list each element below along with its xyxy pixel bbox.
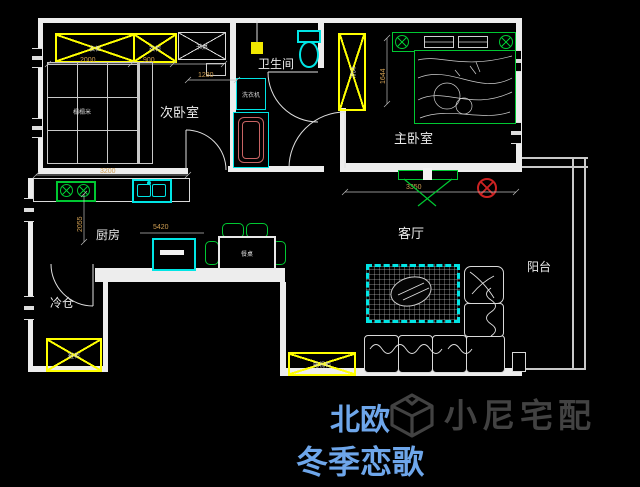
window-icon xyxy=(32,48,42,68)
dining-table: 餐桌 xyxy=(218,236,276,270)
window-icon xyxy=(24,296,34,320)
sink-faucet-icon xyxy=(147,181,151,185)
dim-kitchen-run: 3200 xyxy=(100,168,116,175)
room-label-living-room: 客厅 xyxy=(398,227,424,240)
tv-cabinet: 电视柜 xyxy=(288,352,356,376)
room-label-kitchen: 厨房 xyxy=(96,229,120,241)
room-label-cold-storage: 冷仓 xyxy=(50,297,74,309)
watermark-text: 小尼宅配 xyxy=(444,399,596,432)
balcony-window-top-1 xyxy=(522,157,588,159)
wall-left-upper xyxy=(38,18,43,174)
sofa-seat xyxy=(432,335,467,373)
room-label-balcony: 阳台 xyxy=(527,261,551,273)
balcony-window-right-2 xyxy=(584,157,586,370)
bathtub xyxy=(238,117,264,163)
dim-desk: 1280 xyxy=(198,72,214,79)
balcony-bottom-line xyxy=(522,368,584,370)
room-label-secondary-bedroom: 次卧室 xyxy=(160,106,199,119)
window-icon xyxy=(511,122,521,144)
wall-coldroom-right xyxy=(103,282,108,372)
shoe-cabinet: 鞋柜 xyxy=(46,338,102,372)
washing-machine: 洗衣机 xyxy=(236,78,266,110)
balcony-window-top-2 xyxy=(522,166,588,168)
dim-wardrobe-a: 2000 xyxy=(80,57,96,64)
balcony-step xyxy=(512,352,526,372)
floor-plan-canvas: 衣柜 衣柜 书桌 榻榻米 次卧室 2000 900 1280 洗衣机 卫生间 衣… xyxy=(0,0,640,487)
sofa-seat xyxy=(398,335,433,373)
master-wardrobe-box: 衣柜 xyxy=(338,33,366,111)
dim-kitchen-depth: 2055 xyxy=(77,216,84,232)
desk-label: 书桌 xyxy=(196,42,208,51)
water-heater xyxy=(251,42,263,54)
design-title-line2: 冬季恋歌 xyxy=(278,446,442,478)
pillow xyxy=(424,36,454,48)
balcony-window-right-1 xyxy=(572,157,574,370)
sofa-seat xyxy=(364,335,399,373)
bed xyxy=(414,50,516,124)
design-title-line1: 北欧 xyxy=(300,406,420,436)
nightstand-lamp-icon xyxy=(395,35,409,49)
pillow xyxy=(458,36,488,48)
wardrobe-box-b: 衣柜 xyxy=(133,33,177,63)
desk-box: 书桌 xyxy=(178,32,226,60)
sofa-seat xyxy=(466,335,505,373)
wall-living-left xyxy=(280,282,286,372)
dim-master-depth: 1644 xyxy=(380,68,387,84)
sofa-chaise-seat xyxy=(464,303,504,337)
dining-chair xyxy=(205,241,219,265)
dining-table-label: 餐桌 xyxy=(241,249,253,258)
wardrobe-b-label: 衣柜 xyxy=(149,44,161,53)
wardrobe-a-label: 衣柜 xyxy=(89,44,101,53)
sink-basin xyxy=(137,184,151,197)
stove-burner-icon xyxy=(60,184,73,197)
tatami-side-column xyxy=(139,62,153,164)
dim-dining-run: 5420 xyxy=(153,224,169,231)
shoe-cabinet-label: 鞋柜 xyxy=(68,351,80,360)
sofa-chaise-pillow xyxy=(464,266,504,304)
tatami-label: 榻榻米 xyxy=(73,110,91,116)
wall-bath-right-upper xyxy=(318,20,324,68)
room-label-bathroom: 卫生间 xyxy=(258,58,294,70)
window-icon xyxy=(32,118,42,138)
sink-basin xyxy=(152,184,166,197)
nightstand-lamp-icon xyxy=(499,35,513,49)
wall-top xyxy=(38,18,522,23)
tatami-platform xyxy=(47,62,139,164)
washing-machine-label: 洗衣机 xyxy=(242,90,260,99)
bed-headboard xyxy=(392,32,516,52)
room-label-master-bedroom: 主卧室 xyxy=(394,132,433,145)
wall-master-right xyxy=(516,20,522,172)
toilet-bowl xyxy=(299,41,319,68)
dim-wardrobe-b: 900 xyxy=(143,57,155,64)
stove-burner-icon xyxy=(77,184,90,197)
tv-mount-knob xyxy=(423,168,432,180)
fridge-handle xyxy=(160,250,184,255)
ceiling-lamp-icon xyxy=(477,178,497,198)
tv-cabinet-label: 电视柜 xyxy=(313,360,331,369)
master-wardrobe-label: 衣柜 xyxy=(348,66,357,78)
bathtub-inner xyxy=(242,121,260,159)
dim-living-run: 3350 xyxy=(406,184,422,191)
